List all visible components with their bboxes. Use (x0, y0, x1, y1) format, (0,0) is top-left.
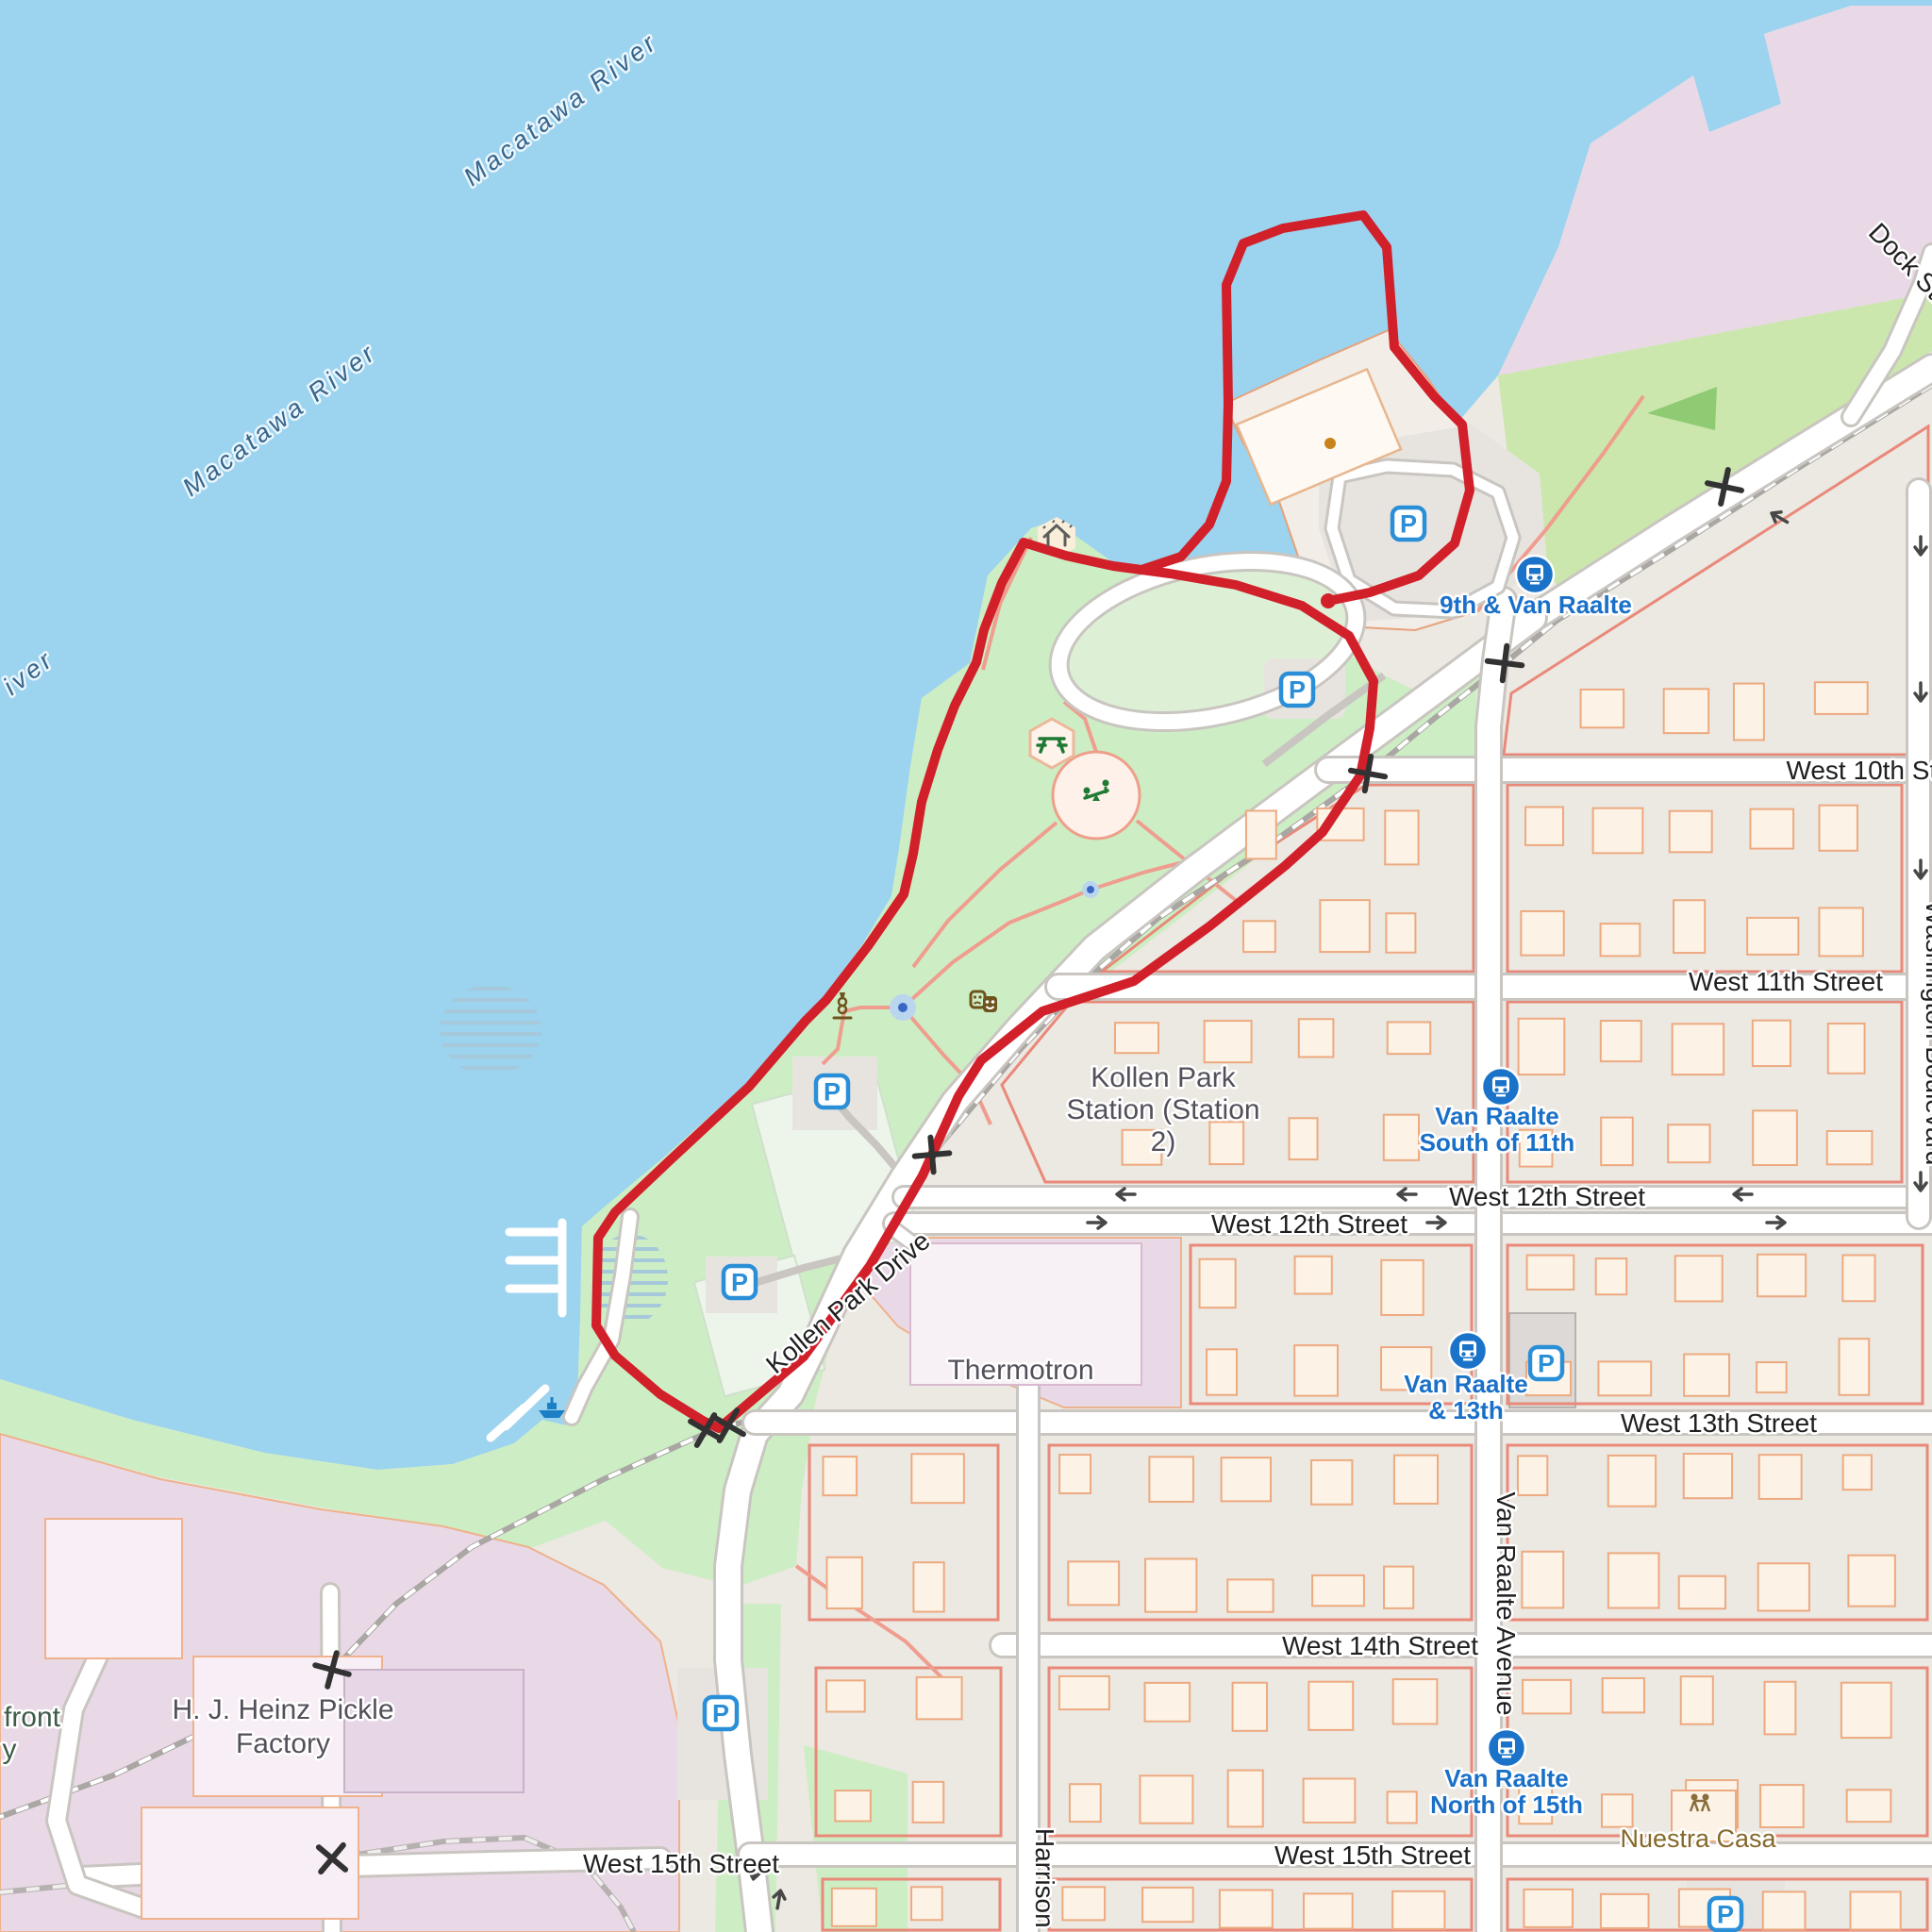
building (1519, 1019, 1565, 1074)
bus-label-van-raalte-13-2: & 13th (1428, 1396, 1503, 1424)
map-shape (1463, 1358, 1473, 1361)
building (1209, 1122, 1243, 1164)
building (1753, 1021, 1790, 1066)
building (835, 1790, 871, 1821)
building (1393, 1679, 1438, 1724)
building (1757, 1362, 1787, 1392)
building (1684, 1355, 1729, 1396)
fountain-icon (890, 994, 916, 1021)
building (1522, 1552, 1563, 1608)
parking-letter: P (731, 1269, 748, 1297)
building (1518, 1456, 1547, 1495)
map-shape (1501, 1741, 1512, 1748)
poi-label-front-partial-2: y (3, 1734, 17, 1765)
map-shape (983, 996, 997, 1012)
building (1765, 1682, 1796, 1735)
building (1841, 1683, 1891, 1738)
building (1828, 1024, 1865, 1074)
poi-label-heinz-1: H. J. Heinz Pickle (172, 1694, 393, 1725)
building (1664, 689, 1708, 733)
building (1227, 1579, 1273, 1611)
street-label-west-13th: West 13th Street (1621, 1408, 1817, 1438)
building (1601, 1894, 1649, 1928)
map-shape (1324, 438, 1336, 449)
map-shape (1496, 1094, 1506, 1097)
building (1312, 1575, 1364, 1606)
parking-letter: P (1289, 676, 1306, 705)
building (1673, 1024, 1724, 1074)
fountain-icon-small (1082, 881, 1099, 898)
building (1527, 1256, 1574, 1290)
street-label-washington-boulevard: Washington Boulevard (1921, 901, 1932, 1166)
map-shape (1500, 1749, 1504, 1753)
building (1295, 1257, 1332, 1294)
building (1747, 918, 1798, 955)
building (1149, 1457, 1193, 1502)
building (1753, 1110, 1797, 1165)
building (1308, 1682, 1353, 1730)
building (1205, 1021, 1252, 1062)
building (1228, 1771, 1263, 1827)
building (1850, 1891, 1900, 1929)
building (1068, 1561, 1119, 1605)
building (1608, 1456, 1656, 1507)
building (1070, 1784, 1101, 1822)
building (1848, 1556, 1895, 1607)
map-canvas[interactable]: PPPPPPPMacatawa RiverMacatawa RiveriverW… (0, 0, 1932, 1932)
map-shape (547, 1403, 557, 1409)
building (1603, 1678, 1644, 1712)
map-shape (1528, 575, 1532, 579)
map-shape (1494, 1088, 1498, 1091)
building (913, 1782, 944, 1823)
map-shape (986, 1000, 990, 1004)
poi-label-nuestra-casa: Nuestra Casa (1620, 1824, 1776, 1853)
parking-letter: P (1538, 1350, 1555, 1378)
building (1207, 1349, 1237, 1394)
building (1115, 1023, 1158, 1053)
map-shape (1470, 1352, 1474, 1356)
building (1200, 1259, 1236, 1307)
building (1243, 921, 1275, 952)
street-label-west-15th-a: West 15th Street (583, 1849, 779, 1878)
building (1386, 913, 1415, 952)
street-label-west-12th-b: West 12th Street (1211, 1209, 1407, 1239)
building (1679, 1576, 1725, 1608)
bus-label-van-raalte-n15-2: North of 15th (1430, 1790, 1583, 1819)
parking-icon: P (724, 1266, 756, 1298)
street-label-west-14th: West 14th Street (1282, 1631, 1478, 1660)
parking-letter: P (1717, 1901, 1734, 1929)
building (1815, 682, 1868, 714)
building (1681, 1676, 1713, 1724)
building (1304, 1778, 1356, 1822)
map-shape (974, 995, 976, 998)
parking-letter: P (712, 1700, 729, 1728)
poi-label-kollen-park-station-3: 2) (1151, 1126, 1176, 1158)
building (1392, 1891, 1444, 1929)
parking-icon: P (1530, 1347, 1562, 1379)
building (1320, 900, 1369, 952)
building (913, 1562, 943, 1611)
building (1596, 1258, 1627, 1294)
building (1758, 1563, 1809, 1610)
bus-stop-van-raalte-north-of-15th (1488, 1729, 1525, 1767)
building (1847, 1790, 1891, 1822)
building (1842, 1255, 1874, 1301)
building (1675, 1256, 1723, 1301)
building (1601, 924, 1641, 956)
building (911, 1887, 942, 1920)
map-shape (898, 1003, 908, 1012)
building (1593, 808, 1643, 854)
map-shape (1495, 1080, 1507, 1087)
building (1581, 690, 1624, 727)
building (1601, 1118, 1633, 1166)
building (1140, 1775, 1192, 1823)
map-shape (1502, 1756, 1511, 1758)
building (1734, 684, 1764, 741)
building (1145, 1683, 1191, 1722)
poi-label-thermotron: Thermotron (947, 1355, 1093, 1386)
parking-letter: P (824, 1078, 841, 1107)
building (1304, 1893, 1353, 1928)
building (1759, 1455, 1802, 1499)
map-shape (1529, 568, 1541, 575)
building (917, 1677, 962, 1720)
building (1840, 1339, 1870, 1395)
building (1385, 810, 1418, 864)
street-label-west-11th: West 11th Street (1689, 967, 1883, 996)
building (1222, 1457, 1271, 1501)
map-shape (1508, 1749, 1512, 1753)
building (832, 1889, 876, 1926)
building (1601, 1021, 1641, 1061)
map-shape (991, 1000, 995, 1004)
building (1750, 809, 1793, 849)
map-rendering: PPPPPPPMacatawa RiverMacatawa RiveriverW… (0, 0, 1932, 1932)
building (1757, 1255, 1806, 1296)
building (1394, 1456, 1438, 1504)
map-shape (1103, 780, 1109, 787)
map-shape (1537, 575, 1541, 579)
building (1388, 1022, 1430, 1054)
poi-label-heinz-2: Factory (236, 1728, 330, 1759)
building (1142, 1888, 1193, 1922)
street-label-west-10th: West 10th Str (1786, 756, 1932, 785)
bus-label-9th-van-raalte: 9th & Van Raalte (1440, 591, 1632, 619)
building (826, 1680, 865, 1711)
building (1384, 1115, 1419, 1160)
building (1388, 1791, 1417, 1823)
building (1670, 811, 1712, 853)
building (1674, 900, 1705, 953)
bus-label-van-raalte-13-1: Van Raalte (1404, 1370, 1528, 1398)
bus-label-van-raalte-s11-2: South of 11th (1420, 1128, 1575, 1157)
street-label-van-raalte-avenue: Van Raalte Avenue (1491, 1491, 1521, 1715)
gps-route-endpoint (1321, 593, 1336, 608)
parking-icon: P (1709, 1898, 1741, 1930)
bus-label-van-raalte-n15-1: Van Raalte (1444, 1764, 1569, 1792)
building (1819, 908, 1862, 956)
building (1524, 1890, 1573, 1927)
building (1843, 1455, 1872, 1490)
building (1602, 1794, 1633, 1826)
building (344, 1670, 524, 1792)
wetland-reeds-2 (440, 985, 541, 1075)
map-shape (1087, 886, 1094, 893)
building (1525, 808, 1563, 845)
map-shape (1530, 582, 1540, 585)
poi-label-front-partial: front (4, 1702, 61, 1733)
building (1294, 1345, 1338, 1395)
bus-stop-van-raalte-and-13th (1449, 1332, 1487, 1370)
building (1246, 810, 1276, 858)
map-shape (1462, 1344, 1474, 1351)
building (1820, 806, 1857, 851)
poi-label-kollen-park-station-2: Station (Station (1066, 1094, 1259, 1125)
map-shape (978, 995, 981, 998)
building (1145, 1558, 1196, 1611)
map-shape (1691, 1794, 1698, 1801)
map-shape (1084, 788, 1091, 794)
building (1668, 1124, 1709, 1162)
building (1598, 1361, 1651, 1395)
bus-label-van-raalte-s11-1: Van Raalte (1435, 1102, 1559, 1130)
poi-dot-icon (1324, 438, 1336, 449)
map-shape (1461, 1352, 1465, 1356)
parking-letter: P (1400, 510, 1417, 539)
street-label-harrison-avenue: Harrison Av (1030, 1828, 1059, 1932)
building (827, 1557, 862, 1608)
building (1290, 1118, 1318, 1159)
building (1220, 1890, 1273, 1928)
building (1608, 1553, 1659, 1607)
building (1059, 1676, 1109, 1709)
building (1521, 911, 1563, 956)
building (1299, 1019, 1334, 1057)
parking-icon: P (1392, 508, 1424, 540)
bus-stop-9th-van-raalte (1516, 556, 1554, 593)
parking-icon: P (705, 1697, 737, 1729)
building (1311, 1460, 1352, 1505)
building (1827, 1131, 1873, 1164)
building (1059, 1455, 1091, 1493)
building (824, 1457, 858, 1495)
building (1763, 1891, 1806, 1929)
street-label-west-12th-a: West 12th Street (1449, 1182, 1645, 1211)
parking-icon: P (1281, 674, 1313, 706)
bus-stop-van-raalte-south-of-11th (1482, 1068, 1520, 1106)
building (911, 1454, 963, 1503)
map-shape (1503, 1088, 1507, 1091)
building (1523, 1680, 1571, 1714)
building (1384, 1567, 1413, 1608)
parking-icon: P (816, 1075, 848, 1108)
building (1062, 1887, 1105, 1920)
building (45, 1519, 182, 1658)
building (1233, 1683, 1267, 1731)
map-shape (1703, 1794, 1709, 1801)
picnic-area (1030, 719, 1074, 768)
poi-label-kollen-park-station-1: Kollen Park (1091, 1062, 1236, 1093)
building (1760, 1785, 1804, 1827)
building (1381, 1260, 1423, 1315)
street-label-west-15th-b: West 15th Street (1274, 1840, 1471, 1870)
building (1684, 1454, 1732, 1498)
